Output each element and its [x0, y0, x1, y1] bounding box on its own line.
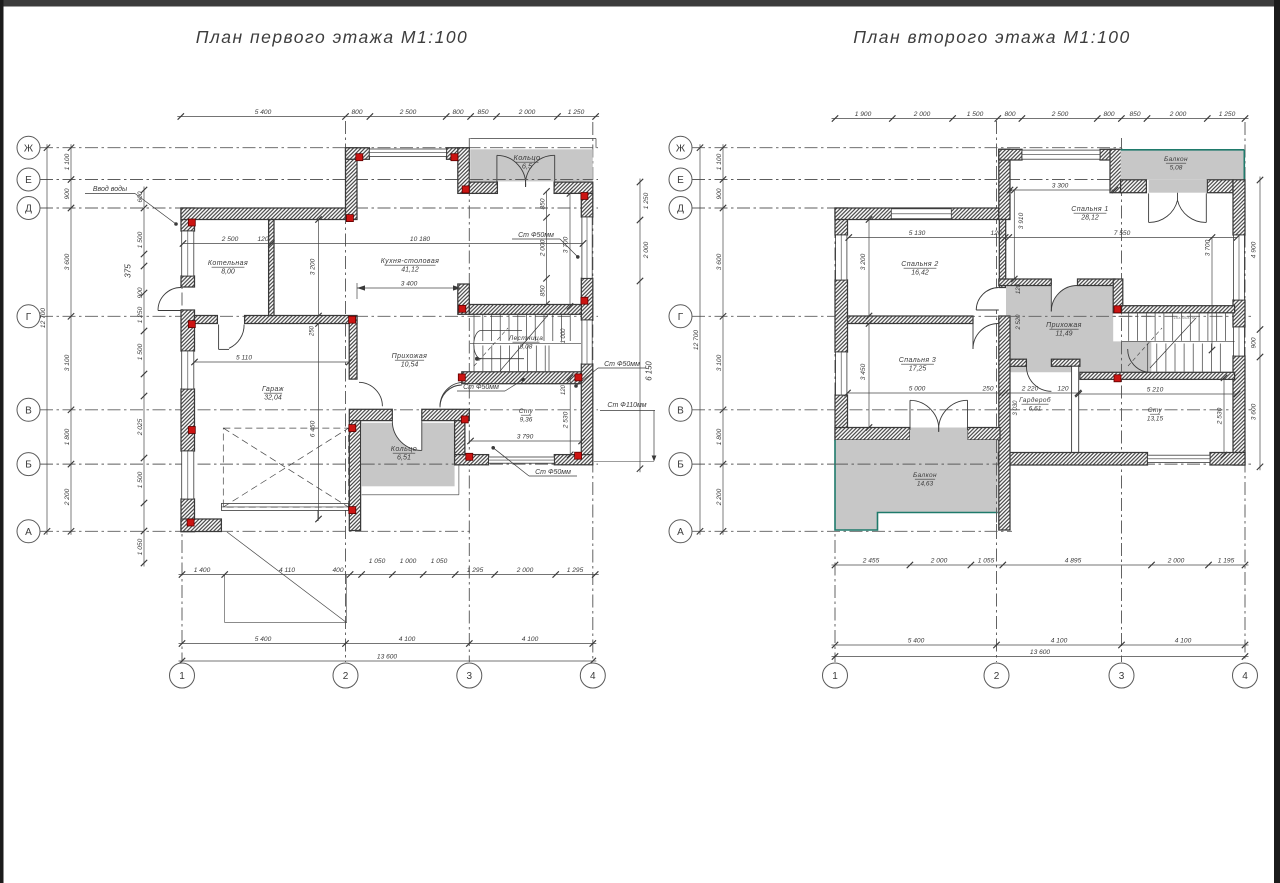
- svg-text:Д: Д: [25, 204, 32, 215]
- svg-text:Г: Г: [678, 312, 684, 323]
- svg-text:Спальня 1: Спальня 1: [1071, 206, 1108, 213]
- svg-text:Сту: Сту: [1148, 407, 1163, 414]
- svg-text:28,12: 28,12: [1080, 215, 1099, 222]
- svg-text:900: 900: [1251, 337, 1258, 348]
- svg-text:4 895: 4 895: [1065, 558, 1082, 565]
- svg-text:Ж: Ж: [676, 143, 686, 154]
- svg-text:1 250: 1 250: [643, 192, 650, 209]
- svg-text:4 100: 4 100: [1051, 638, 1068, 645]
- svg-text:План второго этажа М1:100: План второго этажа М1:100: [853, 27, 1131, 47]
- svg-text:3 200: 3 200: [860, 253, 867, 270]
- svg-text:План первого этажа М1:100: План первого этажа М1:100: [196, 27, 469, 47]
- svg-text:10,54: 10,54: [401, 362, 419, 369]
- svg-text:4 100: 4 100: [1175, 638, 1192, 645]
- svg-text:250: 250: [310, 325, 316, 337]
- svg-text:800: 800: [1103, 111, 1114, 118]
- svg-text:Сту: Сту: [519, 408, 534, 415]
- svg-text:8,08: 8,08: [520, 344, 533, 351]
- svg-text:800: 800: [1004, 111, 1015, 118]
- svg-text:Спальня 3: Спальня 3: [899, 357, 936, 364]
- svg-text:400: 400: [332, 567, 343, 574]
- svg-text:1 050: 1 050: [431, 558, 448, 565]
- svg-text:Кухня-столовая: Кухня-столовая: [381, 258, 440, 265]
- svg-text:5 130: 5 130: [909, 230, 926, 237]
- svg-text:Гараж: Гараж: [262, 386, 285, 393]
- svg-text:2 530: 2 530: [1217, 407, 1224, 425]
- svg-text:2 500: 2 500: [1051, 111, 1069, 118]
- svg-text:Прихожая: Прихожая: [1046, 322, 1082, 329]
- svg-text:Балкон: Балкон: [913, 472, 937, 479]
- svg-text:5,08: 5,08: [1170, 165, 1183, 172]
- svg-text:1 055: 1 055: [978, 558, 995, 565]
- svg-text:5 000: 5 000: [909, 386, 926, 393]
- svg-text:1 400: 1 400: [194, 567, 211, 574]
- svg-text:1 900: 1 900: [855, 111, 872, 118]
- svg-text:1: 1: [832, 671, 838, 682]
- svg-text:1 295: 1 295: [567, 567, 584, 574]
- svg-text:1 250: 1 250: [1219, 111, 1236, 118]
- svg-text:Лестница: Лестница: [508, 335, 543, 342]
- svg-text:3 600: 3 600: [1251, 403, 1258, 420]
- svg-text:375: 375: [124, 264, 133, 278]
- svg-text:3 910: 3 910: [1018, 212, 1025, 229]
- svg-text:5 210: 5 210: [1147, 387, 1164, 394]
- svg-text:120: 120: [257, 236, 268, 243]
- svg-text:10 180: 10 180: [410, 236, 431, 243]
- svg-text:1 100: 1 100: [716, 153, 723, 170]
- svg-text:120: 120: [1016, 283, 1022, 294]
- svg-text:11,49: 11,49: [1056, 331, 1073, 338]
- svg-text:2 000: 2 000: [516, 567, 534, 574]
- svg-text:3 100: 3 100: [64, 354, 71, 371]
- svg-text:Ст Ф50мм: Ст Ф50мм: [463, 384, 499, 391]
- svg-text:900: 900: [137, 287, 144, 298]
- svg-text:1 050: 1 050: [137, 538, 144, 555]
- svg-text:1: 1: [179, 671, 185, 682]
- svg-text:Ст Ф50мм: Ст Ф50мм: [518, 232, 554, 239]
- svg-text:2 025: 2 025: [137, 418, 144, 436]
- svg-text:1 295: 1 295: [467, 567, 484, 574]
- svg-text:13,15: 13,15: [1147, 416, 1164, 423]
- svg-text:4: 4: [1242, 671, 1248, 682]
- svg-text:Ж: Ж: [24, 143, 34, 154]
- svg-text:14,63: 14,63: [917, 481, 934, 488]
- svg-text:4 900: 4 900: [1251, 241, 1258, 258]
- svg-text:1 500: 1 500: [137, 471, 144, 488]
- svg-text:120: 120: [1057, 386, 1068, 393]
- svg-text:Б: Б: [677, 460, 684, 471]
- svg-text:1 100: 1 100: [64, 153, 71, 170]
- svg-text:2 220: 2 220: [1021, 386, 1039, 393]
- svg-text:6 150: 6 150: [645, 361, 654, 381]
- svg-text:7 550: 7 550: [1114, 230, 1131, 237]
- svg-text:5 400: 5 400: [255, 109, 272, 116]
- svg-text:Б: Б: [25, 460, 32, 471]
- svg-text:2 500: 2 500: [221, 236, 239, 243]
- svg-text:3 450: 3 450: [860, 363, 867, 380]
- svg-text:6,5: 6,5: [522, 162, 533, 171]
- svg-text:Е: Е: [25, 175, 32, 186]
- svg-text:6,51: 6,51: [397, 453, 411, 462]
- svg-text:16,42: 16,42: [911, 270, 929, 277]
- svg-text:3 300: 3 300: [1052, 183, 1069, 190]
- svg-text:Балкон: Балкон: [1164, 156, 1188, 163]
- svg-text:5 400: 5 400: [255, 636, 272, 643]
- svg-text:3 600: 3 600: [716, 253, 723, 270]
- svg-text:4 100: 4 100: [522, 636, 539, 643]
- svg-text:Д: Д: [677, 204, 684, 215]
- svg-text:1 500: 1 500: [137, 231, 144, 248]
- svg-text:850: 850: [540, 285, 547, 296]
- svg-text:Е: Е: [677, 175, 684, 186]
- svg-text:850: 850: [1129, 111, 1140, 118]
- svg-text:6 450: 6 450: [310, 420, 317, 437]
- svg-text:Гардероб: Гардероб: [1019, 396, 1051, 404]
- svg-text:2: 2: [343, 671, 349, 682]
- svg-text:850: 850: [540, 198, 547, 209]
- svg-text:1 500: 1 500: [967, 111, 984, 118]
- svg-text:16x300x150: 16x300x150: [1174, 315, 1197, 320]
- svg-text:2 200: 2 200: [716, 488, 723, 506]
- svg-text:3: 3: [467, 671, 473, 682]
- svg-text:1 800: 1 800: [716, 428, 723, 445]
- svg-text:3 100: 3 100: [716, 354, 723, 371]
- svg-text:3 400: 3 400: [401, 281, 418, 288]
- svg-text:3 600: 3 600: [64, 253, 71, 270]
- svg-text:1 000: 1 000: [561, 328, 567, 344]
- svg-text:Прихожая: Прихожая: [392, 353, 428, 360]
- svg-text:4 100: 4 100: [399, 636, 416, 643]
- svg-text:Ввод воды: Ввод воды: [93, 185, 128, 193]
- svg-text:2: 2: [994, 671, 1000, 682]
- svg-text:13 600: 13 600: [1030, 649, 1051, 656]
- svg-text:1 800: 1 800: [64, 428, 71, 445]
- svg-text:8,00: 8,00: [221, 269, 235, 276]
- svg-text:900: 900: [64, 188, 71, 199]
- svg-text:600: 600: [137, 191, 144, 202]
- svg-text:В: В: [677, 405, 684, 416]
- svg-text:800: 800: [452, 109, 463, 116]
- svg-text:120: 120: [561, 384, 567, 395]
- svg-text:2 000: 2 000: [643, 241, 650, 259]
- svg-text:850: 850: [477, 109, 488, 116]
- svg-text:3 700: 3 700: [1205, 239, 1212, 256]
- svg-text:Спальня 2: Спальня 2: [901, 261, 938, 268]
- svg-text:800: 800: [351, 109, 362, 116]
- svg-text:А: А: [25, 527, 32, 538]
- svg-text:2 000: 2 000: [1167, 558, 1185, 565]
- svg-text:1 250: 1 250: [568, 109, 585, 116]
- svg-text:2 000: 2 000: [913, 111, 931, 118]
- svg-text:Котельная: Котельная: [208, 260, 248, 267]
- svg-text:1 050: 1 050: [369, 558, 386, 565]
- svg-text:12 700: 12 700: [40, 308, 47, 329]
- svg-text:32,04: 32,04: [264, 395, 282, 402]
- svg-text:2 200: 2 200: [64, 488, 71, 506]
- svg-text:41,12: 41,12: [401, 267, 419, 274]
- svg-text:2 455: 2 455: [862, 558, 880, 565]
- svg-text:900: 900: [716, 188, 723, 199]
- svg-text:13 600: 13 600: [377, 654, 398, 661]
- svg-text:2 000: 2 000: [518, 109, 536, 116]
- svg-text:2 530: 2 530: [563, 411, 570, 429]
- svg-text:12 700: 12 700: [693, 330, 700, 351]
- svg-text:3 790: 3 790: [517, 434, 534, 441]
- svg-text:Ст Ф50мм: Ст Ф50мм: [535, 469, 571, 476]
- svg-text:250: 250: [981, 386, 993, 393]
- svg-text:А: А: [677, 527, 684, 538]
- svg-text:5 400: 5 400: [908, 638, 925, 645]
- svg-text:2 500: 2 500: [399, 109, 417, 116]
- svg-text:Ст Ф110мм: Ст Ф110мм: [607, 402, 646, 409]
- svg-text:3 200: 3 200: [310, 258, 317, 275]
- svg-text:17,25: 17,25: [909, 366, 927, 373]
- svg-text:2 000: 2 000: [540, 239, 547, 257]
- svg-text:2 000: 2 000: [1169, 111, 1187, 118]
- svg-text:1 500: 1 500: [137, 343, 144, 360]
- svg-text:В: В: [25, 405, 32, 416]
- svg-text:Г: Г: [26, 312, 32, 323]
- svg-text:120: 120: [990, 230, 1001, 237]
- svg-text:Ст Ф50мм: Ст Ф50мм: [604, 361, 640, 368]
- svg-text:4: 4: [590, 671, 596, 682]
- svg-text:5 110: 5 110: [236, 355, 252, 362]
- svg-text:2 000: 2 000: [930, 558, 948, 565]
- svg-text:1 000: 1 000: [400, 558, 417, 565]
- svg-text:1 250: 1 250: [137, 306, 144, 323]
- svg-text:9,36: 9,36: [520, 417, 533, 424]
- svg-text:3: 3: [1119, 671, 1125, 682]
- svg-text:6,61: 6,61: [1029, 406, 1042, 413]
- svg-text:1 195: 1 195: [1218, 558, 1235, 565]
